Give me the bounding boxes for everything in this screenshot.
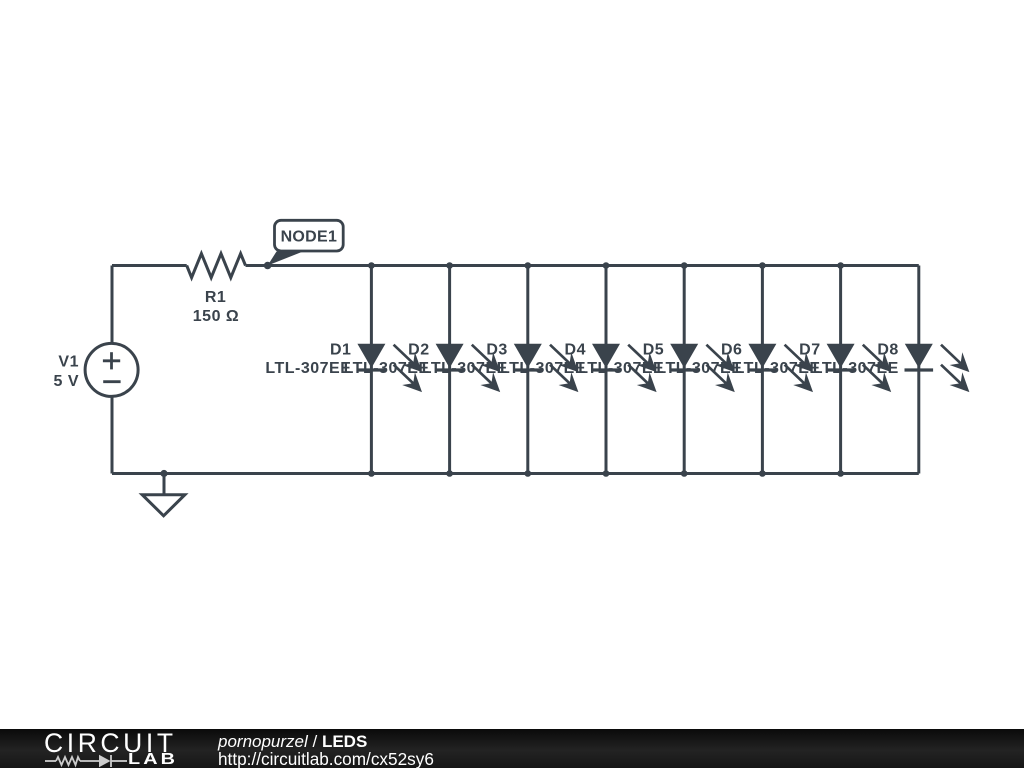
svg-text:5 V: 5 V	[53, 373, 79, 390]
svg-text:LTL-307EE: LTL-307EE	[813, 360, 899, 377]
svg-text:D6: D6	[721, 342, 742, 359]
svg-text:D3: D3	[486, 342, 507, 359]
svg-text:LTL-307EE: LTL-307EE	[265, 360, 351, 377]
svg-text:LTL-307EE: LTL-307EE	[422, 360, 508, 377]
svg-text:D1: D1	[330, 342, 351, 359]
svg-text:D7: D7	[799, 342, 820, 359]
svg-text:LTL-307EE: LTL-307EE	[735, 360, 821, 377]
svg-text:D4: D4	[565, 342, 586, 359]
svg-text:LTL-307EE: LTL-307EE	[578, 360, 664, 377]
svg-text:NODE1: NODE1	[281, 229, 338, 246]
svg-text:150 Ω: 150 Ω	[193, 308, 239, 325]
svg-text:LTL-307EE: LTL-307EE	[500, 360, 586, 377]
svg-text:R1: R1	[205, 289, 226, 306]
svg-text:D5: D5	[643, 342, 664, 359]
svg-text:V1: V1	[58, 354, 79, 371]
svg-text:LTL-307EE: LTL-307EE	[344, 360, 430, 377]
svg-text:D8: D8	[877, 342, 898, 359]
svg-text:LTL-307EE: LTL-307EE	[656, 360, 742, 377]
svg-text:D2: D2	[408, 342, 429, 359]
